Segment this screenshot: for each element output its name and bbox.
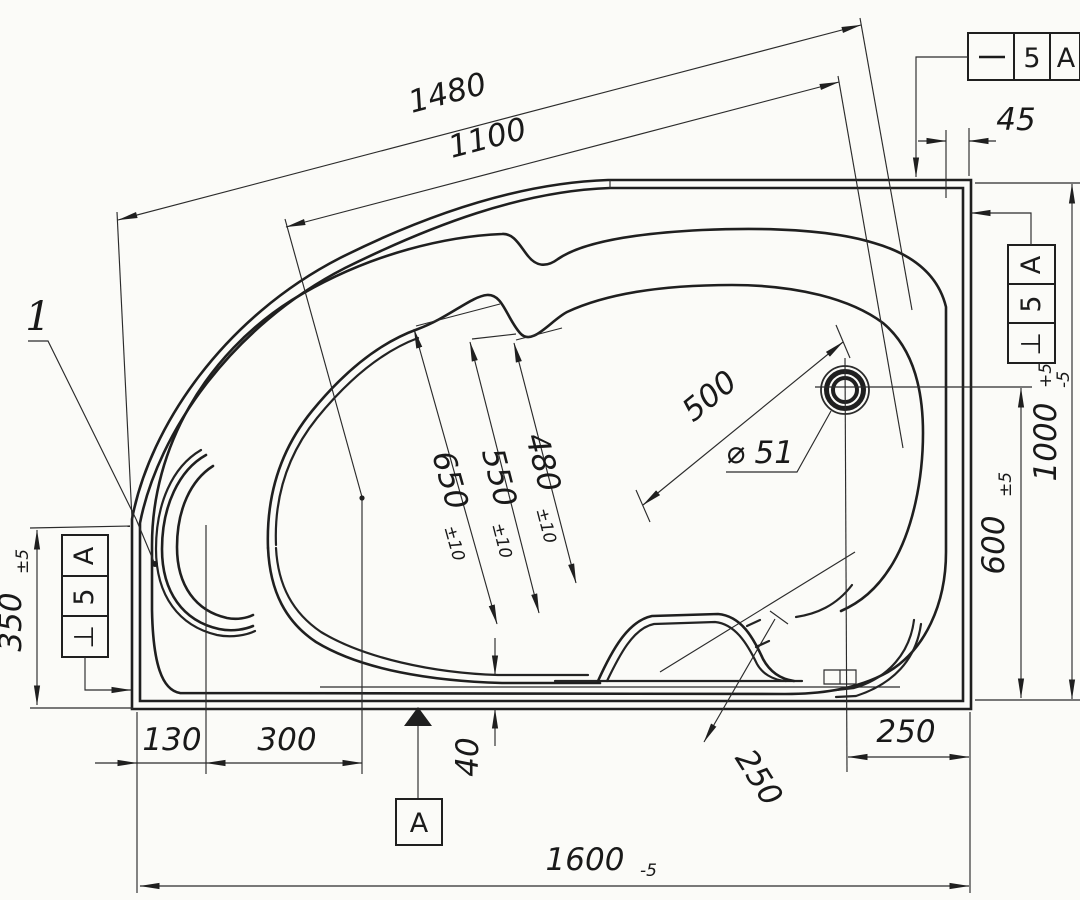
armrest-edge	[796, 585, 852, 617]
seat-construction-line	[660, 552, 855, 672]
dim-tol: -5	[640, 861, 657, 881]
leader-dot	[152, 561, 158, 567]
dim-tol: ±5	[996, 472, 1016, 497]
part-label-1: 1	[25, 294, 158, 567]
frame-datum: A	[69, 546, 100, 565]
dim-tol-plus: +5	[1036, 363, 1056, 388]
datum-a-marker: A	[396, 707, 442, 845]
dim-text-350: 350	[0, 592, 29, 651]
headrest-outer-edge	[162, 455, 253, 630]
dim-600: 600 ±5	[976, 388, 1021, 698]
extension-dot	[359, 495, 364, 500]
dim-tol: ±10	[487, 521, 515, 561]
corner-radius-outer	[836, 620, 914, 690]
dim-tol: ±10	[439, 523, 468, 563]
dim-250-diagonal: 250	[704, 611, 789, 812]
dim-tol: ±10	[531, 506, 559, 546]
dim-text-250: 250	[876, 714, 935, 750]
bowl	[268, 285, 923, 697]
dim-text-650: 650	[424, 447, 475, 514]
corner-step	[824, 670, 856, 684]
dim-40: 40	[450, 638, 495, 777]
frame-leader	[85, 657, 131, 690]
dim-text-45: 45	[996, 102, 1035, 138]
dim-tol: ±5	[13, 549, 33, 574]
frame-value: 5	[1016, 295, 1047, 312]
frame-datum: A	[1057, 43, 1076, 74]
bowl-bottom-offset	[276, 548, 588, 675]
frame-value: 5	[69, 588, 100, 605]
tolerance-frame-right: A 5 ⊥	[971, 213, 1055, 363]
dim-45: 45	[918, 102, 1036, 198]
tolerance-frame-left: A 5 ⊥	[62, 535, 131, 690]
dim-drain-diameter: ⌀ 51	[726, 411, 831, 472]
bowl-bottom-edge	[268, 548, 600, 683]
dim-1600: 1600 -5	[140, 842, 969, 886]
drawing-canvas: 1480 1100 5 A 45 A 5 ⊥	[0, 0, 1080, 900]
dim-250-right: 250	[848, 712, 970, 893]
part-number: 1	[25, 294, 50, 340]
frame-value: 5	[1023, 43, 1040, 74]
seat-step-outer	[598, 614, 794, 681]
frame-leader	[916, 57, 968, 177]
dim-text-550: 550	[474, 444, 523, 510]
dim-500: 500	[636, 325, 850, 522]
bowl-edge	[268, 285, 923, 611]
headrest-inner-edge	[177, 466, 253, 619]
dim-text-300: 300	[257, 722, 316, 758]
leader-line	[28, 341, 136, 519]
bathtub-technical-drawing: 1480 1100 5 A 45 A 5 ⊥	[0, 0, 1080, 900]
dim-text-250-diag: 250	[728, 743, 790, 812]
dim-text-dia51: ⌀ 51	[726, 435, 794, 471]
frame-leader	[971, 213, 1031, 245]
perpendicularity-symbol-icon: ⊥	[1016, 332, 1047, 356]
dim-text-500: 500	[675, 364, 744, 429]
dim-text-1600: 1600	[546, 842, 625, 878]
dim-1100: 1100	[285, 76, 903, 501]
dim-text-600: 600	[976, 515, 1012, 574]
dim-text-1100: 1100	[445, 111, 530, 166]
dim-tol-minus: -5	[1054, 371, 1074, 388]
dim-130-300: 130 300	[95, 500, 362, 893]
seat-tick	[747, 620, 760, 626]
frame-datum: A	[1016, 255, 1047, 274]
dim-text-40: 40	[450, 737, 486, 776]
dim-480: 480 ±10	[513, 328, 580, 583]
dim-text-1480: 1480	[405, 66, 490, 121]
seat-tick	[756, 641, 769, 647]
dim-text-1000: 1000	[1028, 403, 1064, 482]
dim-text-130: 130	[142, 722, 201, 758]
dim-text-480: 480	[518, 429, 568, 495]
datum-letter: A	[410, 808, 429, 839]
perpendicularity-symbol-icon: ⊥	[69, 625, 100, 649]
